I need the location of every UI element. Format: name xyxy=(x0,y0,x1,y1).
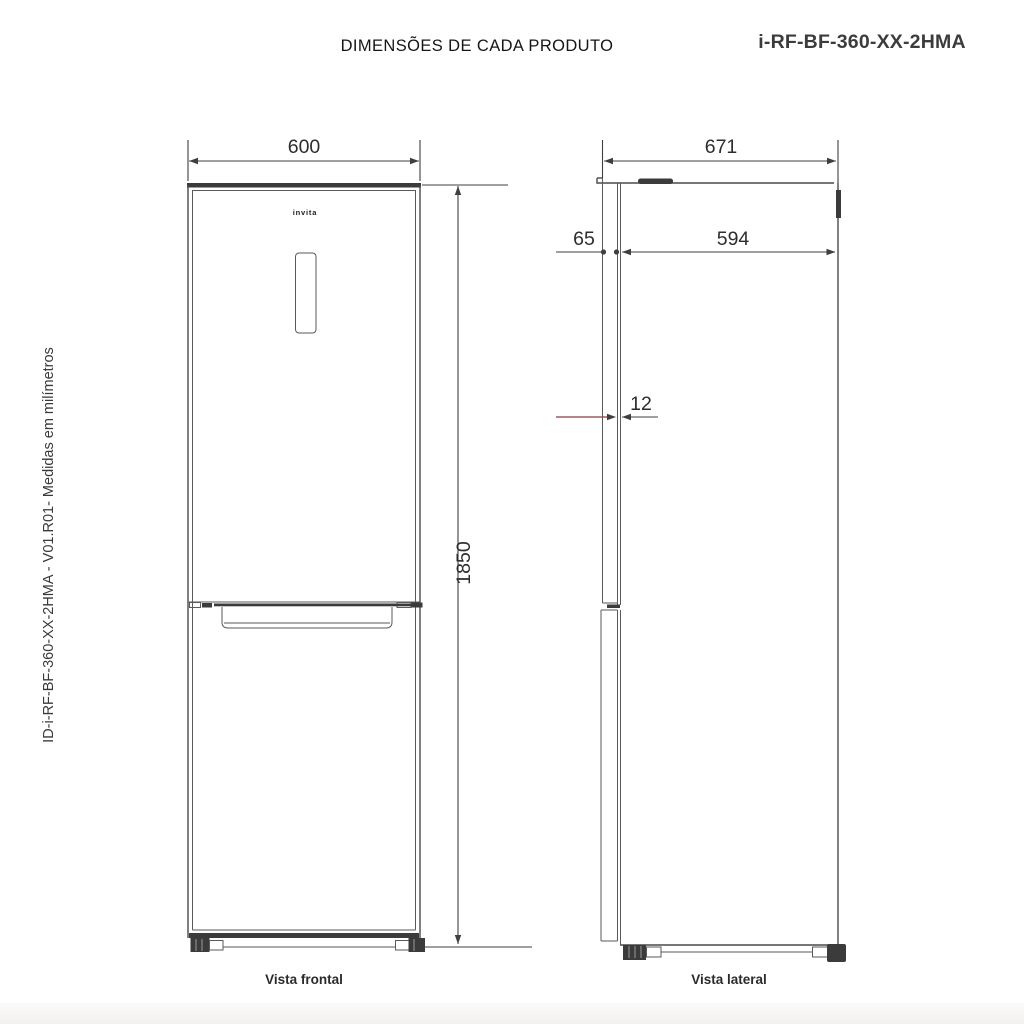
front-right-foot xyxy=(409,938,426,952)
dim-arrow xyxy=(827,158,836,164)
front-height-value: 1850 xyxy=(453,541,475,585)
dim-dot xyxy=(614,249,619,254)
back-hinge-bar xyxy=(836,190,841,218)
dim-arrow xyxy=(604,158,613,164)
footer-strip xyxy=(0,1003,1024,1024)
front-view-dimensions: 600 1850 xyxy=(188,136,532,947)
brand-logo: invita xyxy=(293,208,317,217)
side-rear-foot-bracket xyxy=(813,947,829,957)
side-top-edge xyxy=(597,178,834,183)
kick-plate xyxy=(189,933,419,938)
door-display-panel xyxy=(296,253,317,333)
left-hinge-tab-dark xyxy=(202,603,212,608)
side-front-foot-bracket xyxy=(647,947,662,957)
side-view xyxy=(597,178,846,962)
technical-drawing: invita xyxy=(0,0,1024,1024)
front-top-edge xyxy=(187,183,421,188)
side-cabinet-depth-value: 594 xyxy=(717,228,750,250)
door-step-dark xyxy=(607,605,620,609)
front-width-value: 600 xyxy=(288,136,321,158)
front-right-foot-bracket xyxy=(396,941,410,951)
side-rear-wheel xyxy=(827,944,846,962)
side-view-label: Vista lateral xyxy=(691,972,767,987)
divider-dark-bar xyxy=(214,604,420,607)
top-hinge-cover xyxy=(638,179,673,185)
dimension-sheet: DIMENSÕES DE CADA PRODUTO i-RF-BF-360-XX… xyxy=(0,0,1024,1024)
front-left-foot-bracket xyxy=(210,941,224,951)
side-total-depth-value: 671 xyxy=(705,136,738,158)
front-view: invita xyxy=(187,183,425,952)
front-view-label: Vista frontal xyxy=(265,972,343,987)
dim-arrow xyxy=(410,158,419,164)
dim-arrow xyxy=(189,158,198,164)
side-door-thickness-value: 65 xyxy=(573,228,595,250)
dim-arrow xyxy=(455,186,461,195)
front-left-foot xyxy=(191,938,210,952)
left-hinge-tab xyxy=(190,603,201,608)
dim-arrow xyxy=(622,249,631,255)
dim-arrow xyxy=(455,935,461,944)
dim-dot xyxy=(601,249,606,254)
dim-arrow xyxy=(827,249,836,255)
freezer-handle-recess xyxy=(222,607,392,628)
dim-arrow xyxy=(607,414,616,420)
side-door-gap-value: 12 xyxy=(630,393,652,415)
